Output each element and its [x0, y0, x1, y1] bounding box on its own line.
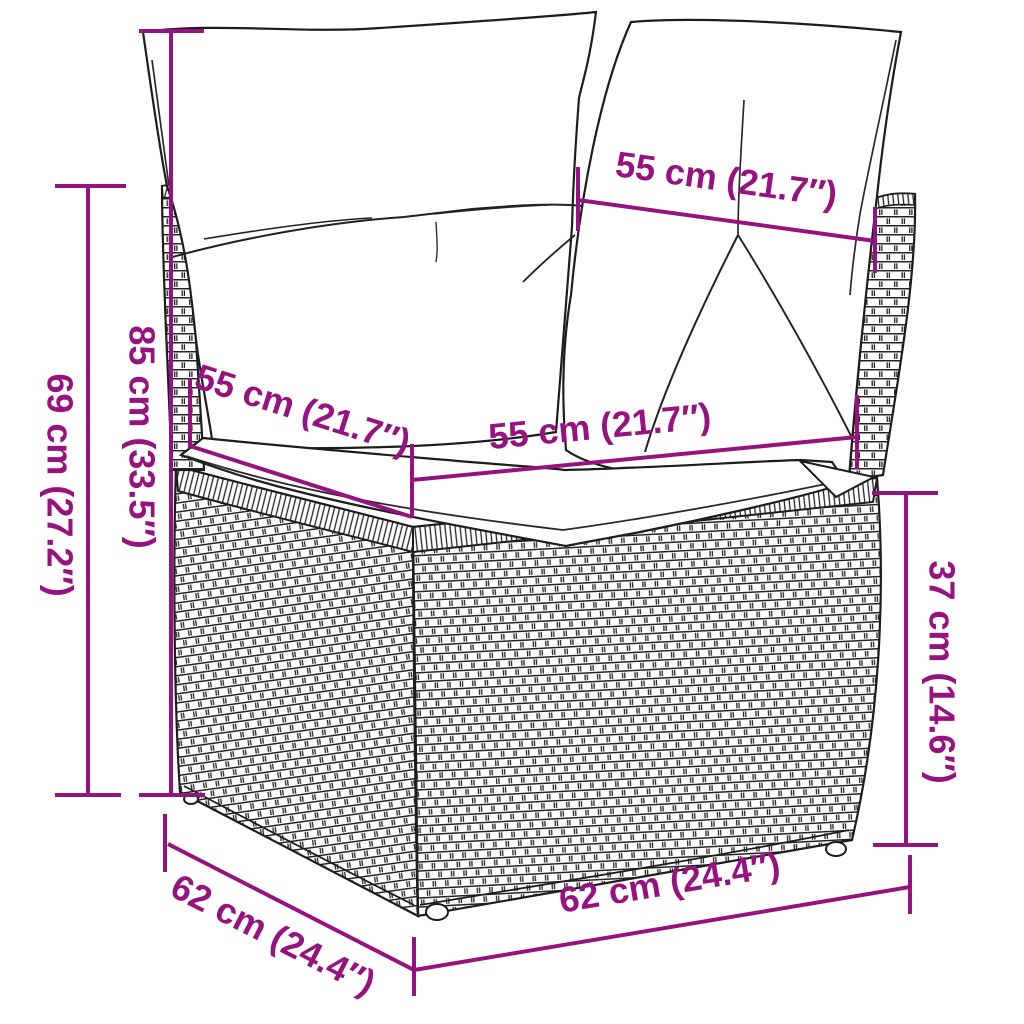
- svg-text:37 cm (14.6″): 37 cm (14.6″): [921, 560, 962, 783]
- svg-text:85 cm (33.5″): 85 cm (33.5″): [121, 325, 162, 548]
- svg-text:69 cm (27.2″): 69 cm (27.2″): [39, 373, 80, 596]
